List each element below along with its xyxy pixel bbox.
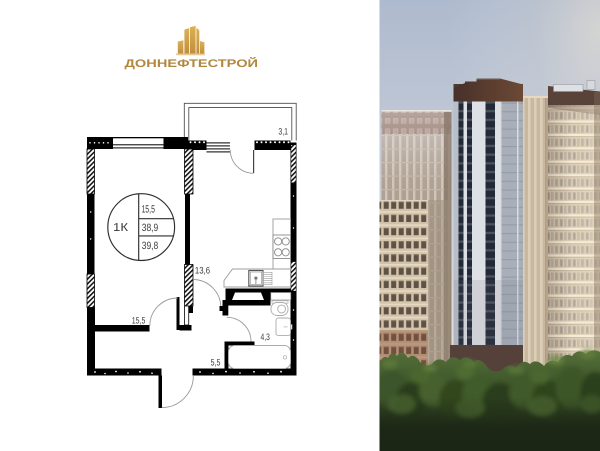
svg-text:5,5: 5,5	[211, 357, 221, 367]
svg-text:15,5: 15,5	[141, 203, 155, 215]
svg-text:3,1: 3,1	[278, 127, 288, 137]
svg-text:ДОННЕФТЕСТРОЙ: ДОННЕФТЕСТРОЙ	[125, 57, 259, 70]
svg-text:39,8: 39,8	[142, 240, 159, 252]
svg-text:1К: 1К	[113, 222, 128, 234]
svg-text:38,9: 38,9	[142, 222, 159, 234]
svg-text:4,3: 4,3	[261, 332, 270, 342]
svg-text:13,6: 13,6	[195, 266, 210, 277]
svg-text:15,5: 15,5	[132, 315, 146, 325]
